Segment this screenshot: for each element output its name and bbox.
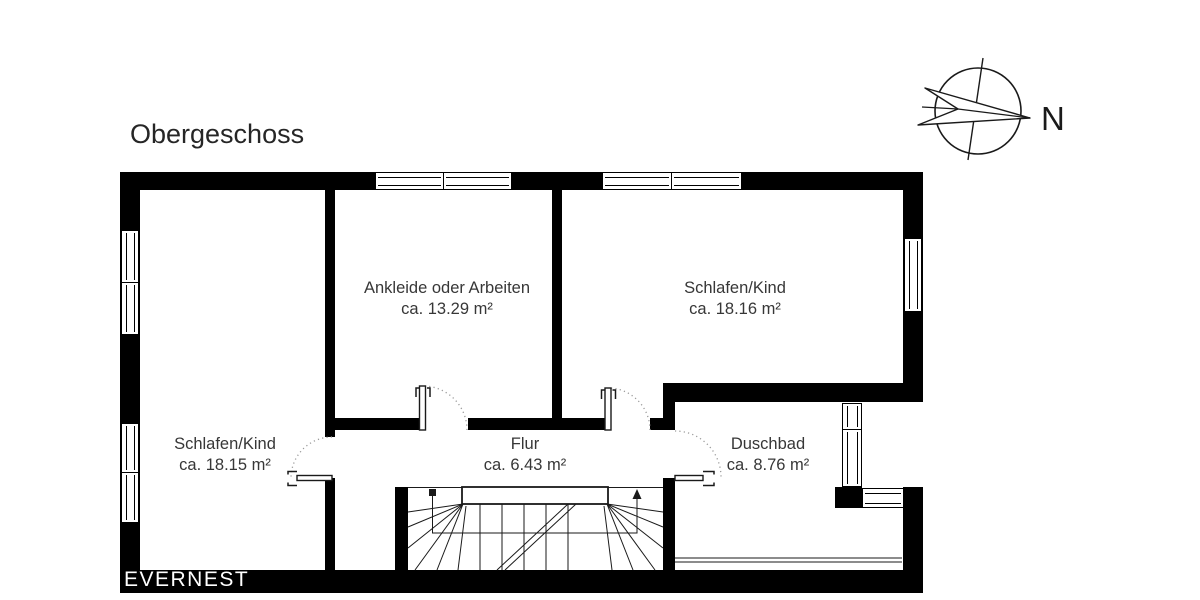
room-name: Duschbad xyxy=(658,434,878,455)
watermark-evernest: EVERNEST xyxy=(124,568,249,592)
stair-landing-bar xyxy=(462,487,608,504)
door-leaf xyxy=(297,476,332,481)
room-area: ca. 18.16 m² xyxy=(625,299,845,320)
compass-north-label: N xyxy=(1041,100,1065,138)
compass-icon xyxy=(918,58,1030,160)
room-name: Flur xyxy=(415,434,635,455)
floorplan-canvas: Obergeschoss xyxy=(0,0,1200,600)
room-name: Ankleide oder Arbeiten xyxy=(337,278,557,299)
room-area: ca. 18.15 m² xyxy=(115,455,335,476)
door-leaf xyxy=(420,386,426,430)
room-label-schlafen-left: Schlafen/Kind ca. 18.15 m² xyxy=(115,434,335,476)
room-area: ca. 6.43 m² xyxy=(415,455,635,476)
room-name: Schlafen/Kind xyxy=(625,278,845,299)
room-label-schlafen-right: Schlafen/Kind ca. 18.16 m² xyxy=(625,278,845,320)
room-name: Schlafen/Kind xyxy=(115,434,335,455)
door-schlafen-right xyxy=(602,388,651,430)
plan-linework xyxy=(0,0,1200,600)
door-swing-arc xyxy=(608,388,650,430)
door-ankleide xyxy=(416,386,467,430)
room-area: ca. 8.76 m² xyxy=(658,455,878,476)
room-label-duschbad: Duschbad ca. 8.76 m² xyxy=(658,434,878,476)
room-label-ankleide: Ankleide oder Arbeiten ca. 13.29 m² xyxy=(337,278,557,320)
room-area: ca. 13.29 m² xyxy=(337,299,557,320)
duschbad-edge-line xyxy=(675,558,902,562)
door-leaf xyxy=(605,388,611,430)
door-leaf xyxy=(675,476,703,481)
room-label-flur: Flur ca. 6.43 m² xyxy=(415,434,635,476)
staircase xyxy=(408,487,663,570)
